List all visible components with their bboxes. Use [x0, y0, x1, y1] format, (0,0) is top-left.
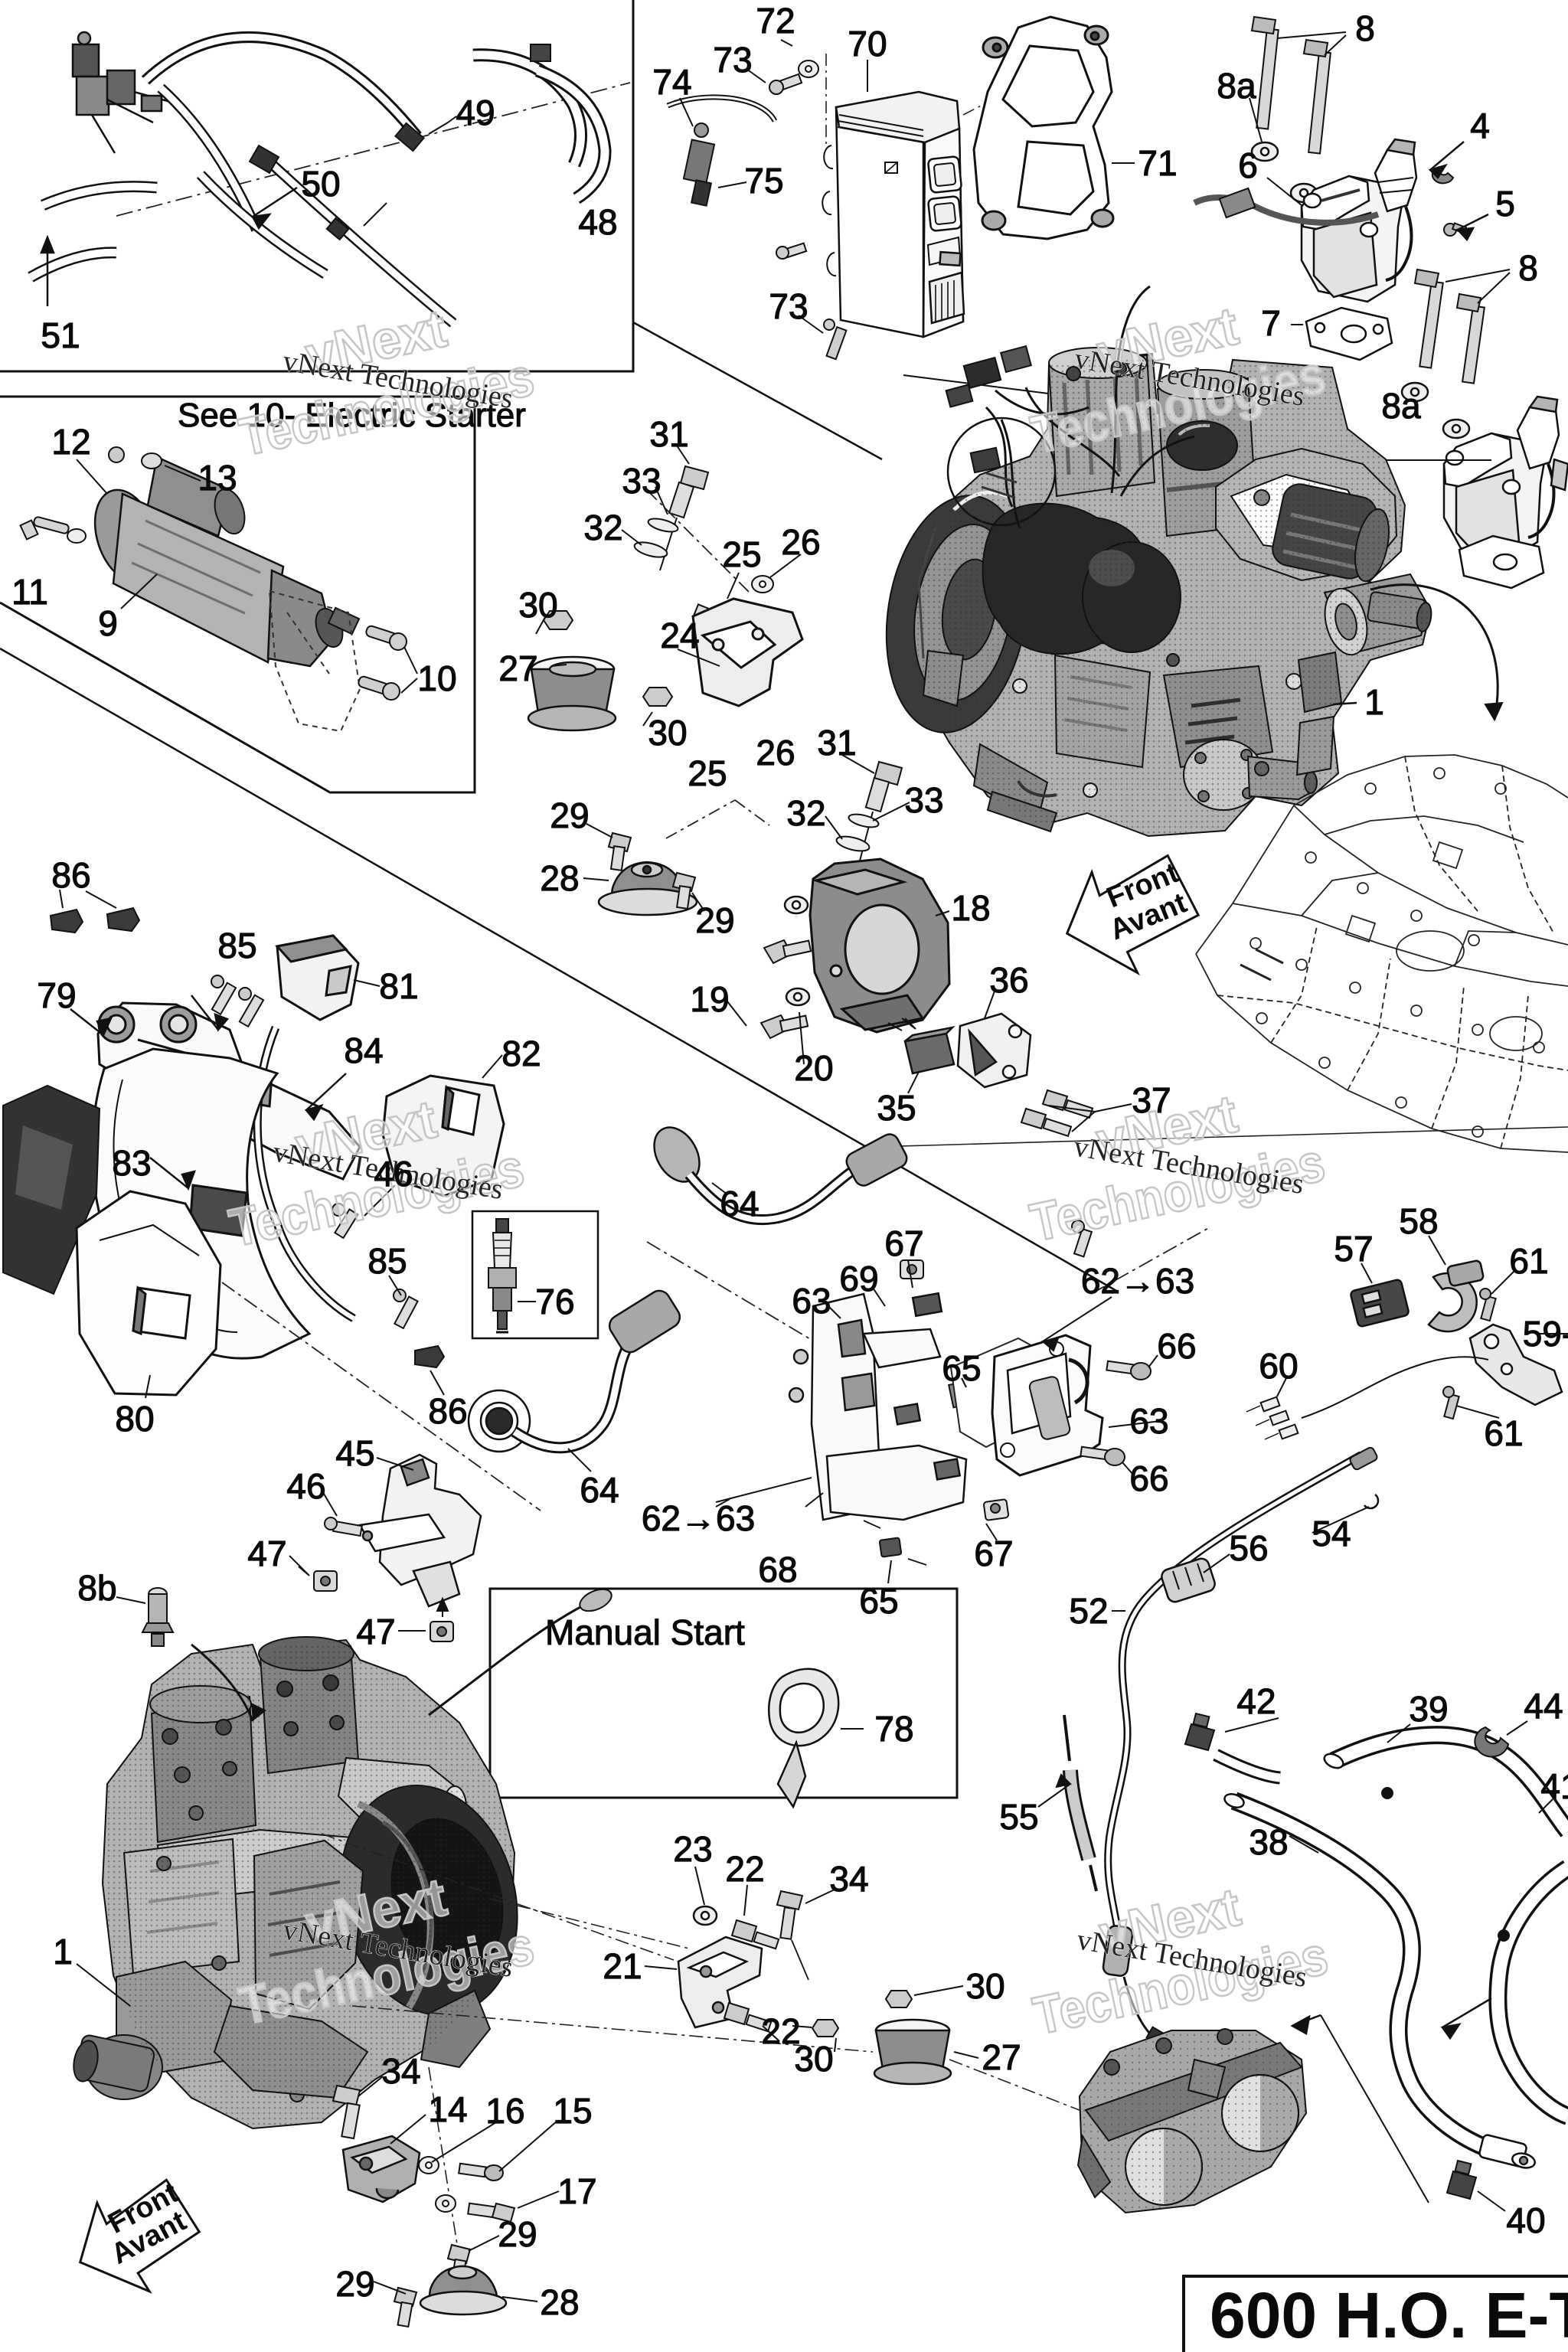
svg-text:52: 52: [1069, 1591, 1108, 1631]
svg-text:17: 17: [557, 2171, 596, 2211]
svg-text:84: 84: [344, 1031, 383, 1070]
svg-text:27: 27: [498, 648, 537, 688]
svg-text:29: 29: [335, 2264, 374, 2304]
svg-text:33: 33: [904, 780, 943, 820]
svg-text:13: 13: [198, 458, 237, 498]
svg-text:50: 50: [301, 164, 340, 204]
svg-text:67: 67: [884, 1223, 923, 1263]
svg-text:9: 9: [98, 603, 118, 643]
svg-text:64: 64: [580, 1470, 619, 1510]
svg-text:26: 26: [781, 522, 820, 562]
svg-text:23: 23: [673, 1829, 712, 1869]
svg-text:63: 63: [792, 1281, 831, 1321]
svg-text:27: 27: [982, 2037, 1021, 2077]
svg-text:46: 46: [374, 1154, 413, 1194]
svg-text:64: 64: [720, 1184, 759, 1223]
svg-text:83: 83: [112, 1143, 151, 1183]
svg-text:1: 1: [1364, 682, 1384, 722]
svg-text:34: 34: [381, 2051, 420, 2091]
svg-text:21: 21: [603, 1946, 642, 1986]
svg-text:69: 69: [839, 1259, 878, 1298]
svg-text:6: 6: [1238, 145, 1258, 185]
svg-text:19: 19: [690, 979, 729, 1019]
svg-text:7: 7: [1261, 303, 1281, 343]
svg-text:56: 56: [1229, 1528, 1268, 1568]
svg-text:8a: 8a: [1217, 66, 1256, 106]
svg-text:16: 16: [485, 2091, 524, 2131]
svg-text:71: 71: [1138, 143, 1177, 183]
svg-text:45: 45: [335, 1433, 374, 1473]
svg-text:63: 63: [1129, 1401, 1168, 1441]
svg-text:74: 74: [652, 62, 691, 102]
svg-text:11: 11: [11, 572, 48, 612]
svg-text:22: 22: [725, 1849, 764, 1889]
svg-text:26: 26: [756, 733, 795, 773]
svg-text:70: 70: [848, 24, 887, 64]
svg-text:600 H.O. E-TEC: 600 H.O. E-TEC: [1210, 2279, 1568, 2351]
svg-text:54: 54: [1312, 1514, 1351, 1553]
svg-text:65: 65: [859, 1581, 898, 1621]
svg-text:60: 60: [1259, 1346, 1298, 1386]
svg-text:66: 66: [1129, 1459, 1168, 1498]
svg-text:30: 30: [794, 2039, 833, 2079]
svg-text:29: 29: [550, 795, 589, 835]
svg-text:29: 29: [695, 900, 734, 940]
svg-text:48: 48: [578, 202, 617, 242]
svg-text:78: 78: [874, 1709, 913, 1749]
svg-text:36: 36: [989, 960, 1028, 1000]
svg-text:34: 34: [829, 1859, 868, 1899]
svg-text:57: 57: [1334, 1229, 1373, 1269]
svg-text:55: 55: [999, 1797, 1038, 1837]
svg-text:47: 47: [247, 1534, 286, 1573]
svg-text:28: 28: [540, 858, 579, 898]
svg-text:51: 51: [41, 315, 80, 355]
svg-text:10: 10: [417, 658, 456, 698]
svg-text:28: 28: [540, 2282, 579, 2322]
svg-text:25: 25: [722, 534, 761, 574]
svg-text:61: 61: [1484, 1413, 1523, 1453]
svg-text:37: 37: [1132, 1080, 1171, 1120]
svg-text:76: 76: [535, 1282, 574, 1321]
svg-text:35: 35: [877, 1088, 916, 1128]
svg-text:8: 8: [1355, 8, 1375, 48]
svg-text:82: 82: [501, 1034, 541, 1073]
svg-text:8: 8: [1518, 248, 1538, 288]
svg-text:41: 41: [1540, 1766, 1568, 1806]
svg-text:47: 47: [356, 1612, 395, 1651]
svg-text:30: 30: [965, 1966, 1004, 2006]
svg-text:24: 24: [660, 616, 699, 655]
svg-text:72: 72: [756, 1, 795, 41]
svg-text:67: 67: [974, 1534, 1013, 1573]
svg-text:31: 31: [817, 723, 856, 763]
svg-text:81: 81: [379, 966, 418, 1006]
svg-text:29: 29: [498, 2214, 537, 2254]
svg-text:86: 86: [51, 855, 90, 895]
svg-text:73: 73: [713, 40, 752, 80]
svg-text:44: 44: [1524, 1686, 1563, 1726]
svg-text:8a: 8a: [1381, 386, 1421, 426]
svg-text:58: 58: [1399, 1201, 1438, 1241]
svg-text:5: 5: [1495, 184, 1515, 224]
svg-text:4: 4: [1470, 106, 1490, 145]
svg-text:86: 86: [428, 1391, 467, 1431]
svg-text:30: 30: [648, 713, 687, 753]
svg-text:40: 40: [1506, 2200, 1545, 2240]
svg-text:66: 66: [1157, 1326, 1196, 1366]
svg-text:12: 12: [51, 422, 90, 462]
svg-text:85: 85: [217, 926, 256, 965]
svg-text:62→63: 62→63: [1081, 1261, 1194, 1301]
svg-text:25: 25: [688, 753, 727, 793]
svg-text:32: 32: [583, 508, 622, 547]
svg-text:85: 85: [367, 1241, 407, 1281]
svg-text:42: 42: [1236, 1681, 1276, 1721]
svg-text:75: 75: [744, 161, 783, 201]
svg-text:73: 73: [769, 286, 808, 326]
svg-text:62→63: 62→63: [642, 1498, 755, 1538]
svg-text:68: 68: [758, 1550, 797, 1589]
svg-text:46: 46: [286, 1466, 325, 1506]
svg-text:49: 49: [456, 93, 495, 132]
svg-text:15: 15: [553, 2091, 592, 2131]
svg-text:80: 80: [115, 1399, 154, 1439]
svg-text:39: 39: [1409, 1689, 1448, 1729]
svg-text:1: 1: [53, 1932, 73, 1971]
svg-text:20: 20: [794, 1048, 833, 1088]
svg-text:65: 65: [942, 1348, 981, 1388]
svg-text:8b: 8b: [77, 1568, 116, 1608]
svg-text:32: 32: [786, 793, 825, 833]
svg-text:18: 18: [951, 888, 990, 928]
svg-text:59-: 59-: [1523, 1314, 1568, 1354]
svg-text:Manual Start: Manual Start: [545, 1612, 745, 1652]
svg-text:61: 61: [1509, 1241, 1548, 1281]
svg-text:79: 79: [37, 975, 76, 1015]
svg-text:31: 31: [649, 414, 688, 454]
svg-text:33: 33: [622, 461, 661, 501]
svg-text:38: 38: [1249, 1822, 1288, 1862]
svg-text:14: 14: [428, 2089, 467, 2129]
svg-text:30: 30: [518, 585, 557, 625]
